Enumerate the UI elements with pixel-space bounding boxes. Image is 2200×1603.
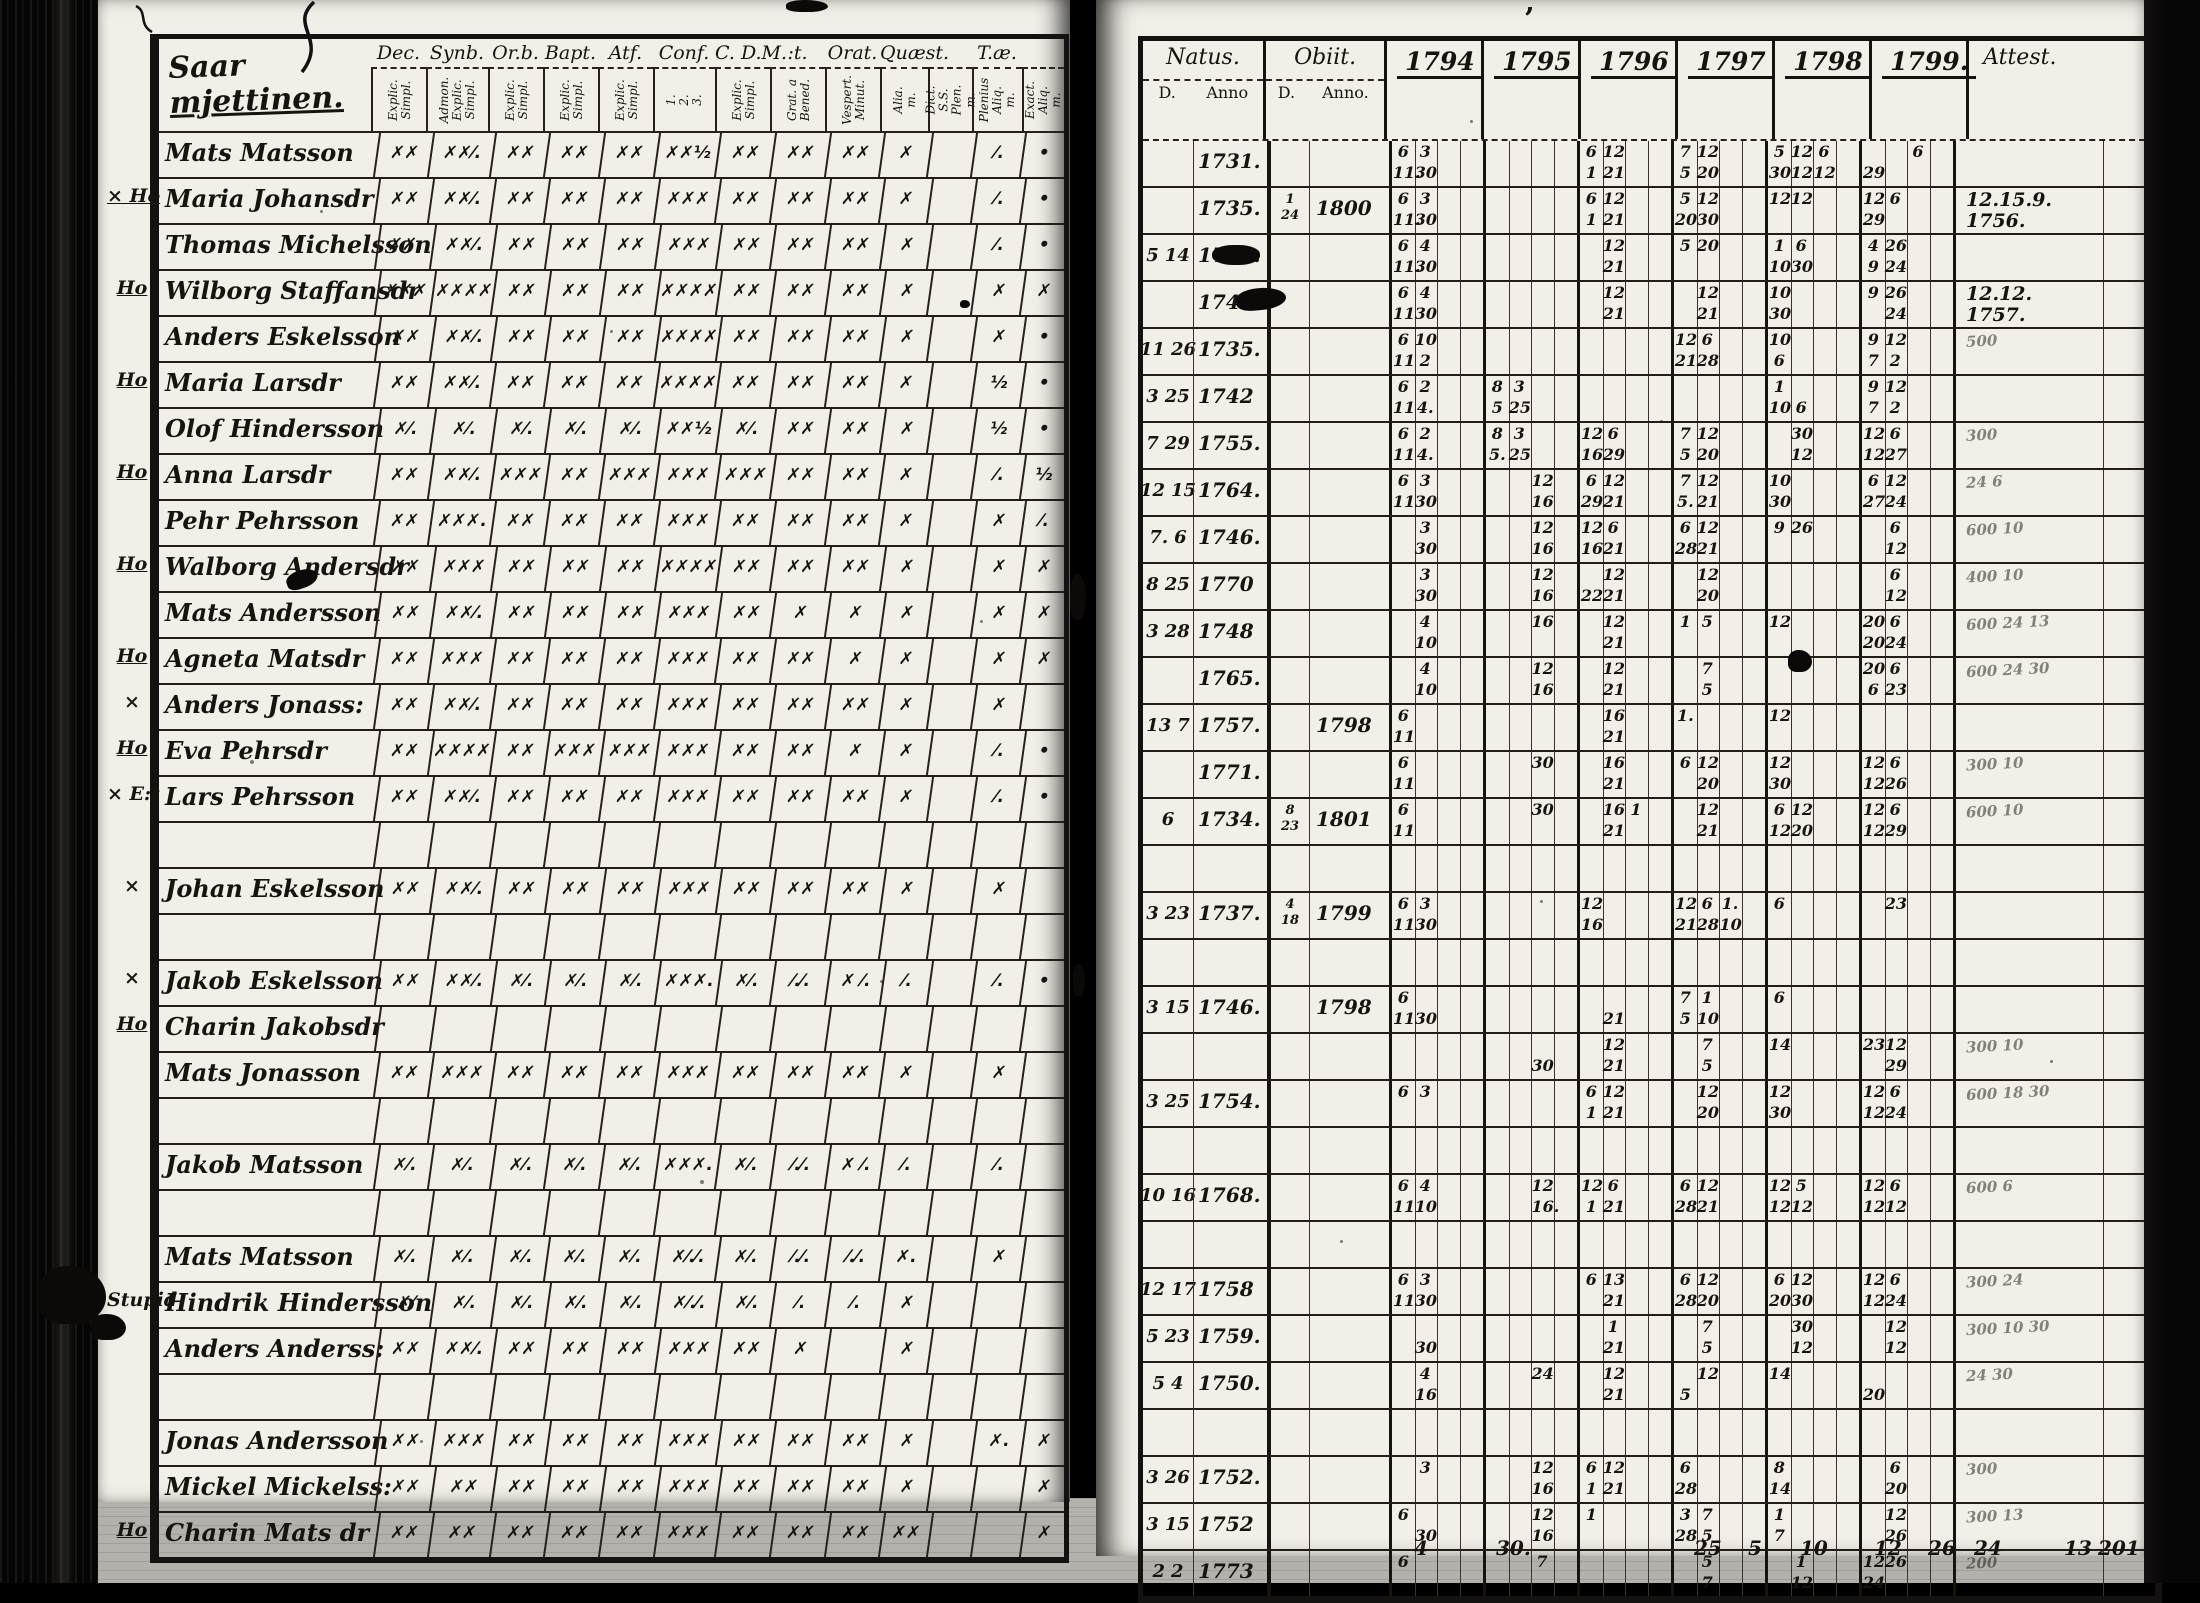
entry-number: 14: [1769, 1035, 1790, 1054]
entry-number: 10: [1415, 633, 1436, 652]
mark-cell: ✗✗: [543, 777, 604, 821]
entry-number: 11: [1393, 304, 1414, 323]
mark-cell: ✗✗: [374, 869, 435, 913]
empty-mark-cell: [1019, 1191, 1067, 1235]
entry-number: 30: [1791, 424, 1812, 443]
entry-number: 21: [1603, 492, 1624, 511]
natus-day-cell: [1143, 658, 1193, 703]
obiit-day-cell: [1267, 1081, 1309, 1126]
entry-number: 7: [1863, 398, 1884, 417]
entry-number: 12: [1697, 518, 1718, 537]
table-row: 11261735.610112126212810691272500: [1143, 329, 2155, 376]
table-row: 10161768.6411101216.12612161228211251212…: [1143, 1175, 2155, 1222]
mark-cell: ✗✗: [372, 1513, 433, 1557]
footer-number: 13: [2064, 1536, 2092, 1560]
natus-year-cell: 1734.: [1193, 799, 1267, 844]
mark-cell: ✗✗✗: [653, 455, 721, 499]
entry-number: 1: [1769, 236, 1790, 255]
empty-mark-cell: [970, 1375, 1026, 1419]
attest-cell: 24 30: [1953, 1363, 2145, 1408]
mark-cell: ⁄.⁄.: [769, 1237, 830, 1281]
mark-cell: [1019, 1007, 1067, 1051]
year-cell: 75: [1671, 1316, 1765, 1361]
attest-line: 12.15.9.: [1966, 190, 2145, 211]
natus-day: 25: [1165, 574, 1190, 609]
person-name: Mickel Mickelss:: [159, 1467, 377, 1511]
obiit-year-cell: [1309, 1175, 1389, 1220]
empty-mark-cell: [653, 1191, 721, 1235]
natus-day: 10: [1140, 1185, 1165, 1220]
entry-number: 6: [1581, 1270, 1602, 1289]
mark-cell: ✗✗: [599, 1329, 660, 1373]
natus-label: Natus.: [1143, 45, 1263, 70]
year-cell: [1765, 658, 1859, 703]
mark-cell: [926, 409, 976, 453]
entry-number: 28: [1697, 915, 1718, 934]
column-sub-label: Dict. S.S. Plen. m.: [928, 69, 972, 131]
mark-cell: ✗⁄.: [428, 1283, 496, 1327]
entry-number: 12: [1885, 1035, 1906, 1054]
entry-number: 12: [1603, 659, 1624, 678]
mark-cell: ✗✗: [769, 363, 830, 407]
year-cell: 612: [1859, 564, 1953, 609]
attest-cell: 600 18 30: [1953, 1081, 2145, 1126]
entry-number: 16: [1532, 539, 1553, 558]
column-sub-label: Explic. Simpl.: [371, 69, 426, 131]
empty-mark-cell: [1019, 1099, 1067, 1143]
mark-cell: ✗✗: [769, 547, 830, 591]
entry-number: 6: [1393, 988, 1414, 1007]
entry-number: 12: [1697, 800, 1718, 819]
entry-number: 9: [1863, 330, 1884, 349]
entry-number: 29: [1863, 163, 1884, 182]
column-sub-label-text: Plenius Aliq. m.: [978, 78, 1018, 122]
mark-cell: ✗✗⁄.: [427, 455, 495, 499]
natus-day-cell: 22: [1143, 1551, 1193, 1596]
natus-year-cell: 1750.: [1193, 1363, 1267, 1408]
entry-number: 12: [1885, 377, 1906, 396]
empty-name-cell: [159, 823, 376, 867]
entry-number: 6: [1675, 1458, 1696, 1477]
table-row: 3012217514231229300 10: [1143, 1034, 2155, 1081]
mark-cell: ✗✗: [823, 501, 884, 545]
obiit-day-cell: [1267, 1222, 1309, 1267]
year-cell: [1483, 846, 1577, 891]
year-cell: [1671, 846, 1765, 891]
entry-number: 10: [1415, 680, 1436, 699]
entry-number: 16: [1532, 1479, 1553, 1498]
natus-day: 5: [1146, 1326, 1159, 1361]
mark-cell: ✗✗: [372, 363, 433, 407]
mark-cell: ✗✗: [489, 1513, 550, 1557]
natus-day-cell: 1016: [1143, 1175, 1193, 1220]
year-cell: [1765, 846, 1859, 891]
year-cell: 426924: [1859, 235, 1953, 280]
year-cell: [1859, 1128, 1953, 1173]
attest-faint-scrawl: 600 24 30: [1966, 659, 2050, 681]
dust-speck: [320, 210, 323, 213]
entry-number: 12: [1791, 1270, 1812, 1289]
entry-number: 6: [1885, 1270, 1906, 1289]
empty-mark-cell: [598, 823, 659, 867]
mark-cell: [926, 179, 976, 223]
table-row: [1143, 1222, 2155, 1269]
mark-cell: ✗: [970, 501, 1026, 545]
year-cell: [1671, 940, 1765, 985]
year-cell: [1671, 376, 1765, 421]
entry-number: 6: [1393, 1082, 1414, 1101]
entry-number: 12: [1697, 471, 1718, 490]
mark-cell: ✗✗✗✗: [653, 363, 721, 407]
entry-number: 12: [1769, 821, 1790, 840]
empty-mark-cell: [489, 1099, 550, 1143]
year-cell: 1220: [1671, 1081, 1765, 1126]
mark-cell: ✗✗: [374, 547, 435, 591]
entry-number: 11: [1393, 398, 1414, 417]
table-row: [159, 1099, 1064, 1145]
entry-number: 27: [1863, 492, 1884, 511]
mark-cell: ✗✗: [544, 1467, 605, 1511]
entry-number: 21: [1603, 680, 1624, 699]
obiit-year-cell: [1309, 1504, 1389, 1549]
column-sub-label-text: Grat. a Bened.: [785, 79, 811, 121]
entry-number: 3: [1415, 894, 1436, 913]
column-group-label: [1022, 39, 1064, 69]
entry-number: 6: [1393, 1505, 1414, 1524]
entry-number: 30: [1415, 1338, 1436, 1357]
column-sub-label: Exact. Aliq. m.: [1022, 69, 1064, 131]
entry-number: 24: [1885, 633, 1906, 652]
natus-year-cell: 1754.: [1193, 1081, 1267, 1126]
natus-sub-d: D.: [1143, 81, 1191, 102]
entry-number: 12: [1863, 753, 1884, 772]
obiit-day: 18: [1271, 913, 1309, 929]
mark-cell: ✗: [970, 1053, 1026, 1097]
column-sub-label: 1. 2. 3.: [653, 69, 715, 131]
mark-cell: ✗✗: [490, 1421, 551, 1465]
dust-speck: [2050, 1060, 2053, 1063]
mark-cell: ✗: [878, 1329, 932, 1373]
mark-cell: ✗✗: [769, 1467, 830, 1511]
mark-cell: ✗✗: [599, 547, 660, 591]
table-row: Mickel Mickelss:✗✗✗✗✗✗✗✗✗✗✗✗✗✗✗✗✗✗✗✗✗: [159, 1467, 1064, 1513]
empty-mark-cell: [823, 1099, 884, 1143]
natus-day: 28: [1165, 621, 1190, 656]
mark-cell: [926, 1283, 976, 1327]
year-cell: 6122724: [1859, 470, 1953, 515]
entry-number: 12: [1532, 565, 1553, 584]
year-cell: 1030: [1765, 282, 1859, 327]
entry-number: 16: [1581, 445, 1602, 464]
person-name: Maria Larsdr: [159, 363, 376, 407]
attest-faint-scrawl: 24 30: [1966, 1365, 2014, 1385]
year-cell: 1261226: [1859, 752, 1953, 797]
mark-cell: [1019, 685, 1067, 729]
year-cell: [1859, 1410, 1953, 1455]
entry-number: 5: [1675, 163, 1696, 182]
year-cell: 3: [1389, 1457, 1483, 1502]
entry-number: 1: [1626, 800, 1647, 819]
year-cell: 1212: [1765, 188, 1859, 233]
entry-number: 11: [1393, 445, 1414, 464]
empty-mark-cell: [543, 1191, 604, 1235]
margin-note: ×: [107, 875, 157, 897]
entry-number: 20: [1697, 445, 1718, 464]
entry-number: 5: [1675, 1009, 1696, 1028]
entry-number: 12: [1697, 424, 1718, 443]
mark-cell: ✗✗✗: [598, 731, 659, 775]
entry-number: 16: [1415, 1385, 1436, 1404]
mark-cell: •: [1019, 961, 1067, 1005]
table-row: 31517526301216137285171226300 13: [1143, 1504, 2155, 1551]
natus-day-cell: 137: [1143, 705, 1193, 750]
table-row: StupidHindrik Hindersson✗⁄✗⁄.✗⁄.✗⁄.✗⁄.✗⁄…: [159, 1283, 1064, 1329]
natus-day-cell: [1143, 1410, 1193, 1455]
entry-number: 6: [1697, 894, 1718, 913]
entry-number: 20: [1863, 1385, 1884, 1404]
mark-cell: ✗: [878, 179, 932, 223]
entry-number: 30: [1697, 210, 1718, 229]
mark-cell: ✗✗: [598, 1053, 659, 1097]
entry-number: 2: [1415, 377, 1436, 396]
person-name: Jonas Andersson: [159, 1421, 377, 1465]
mark-cell: ✗✗✗.: [427, 501, 495, 545]
mark-cell: ✗✗: [490, 869, 551, 913]
mark-cell: ✗✗: [714, 363, 775, 407]
year-cell: [1577, 1410, 1671, 1455]
table-row: [1143, 1410, 2155, 1457]
natus-year-cell: 1735.: [1193, 188, 1267, 233]
attest-cell: 300 10 30: [1953, 1316, 2145, 1361]
year-cell: [1577, 846, 1671, 891]
dust-speck: [420, 1440, 423, 1443]
mark-cell: ✗✗: [598, 777, 659, 821]
attest-faint-scrawl: 24 6: [1966, 472, 2003, 492]
table-row: [1143, 1128, 2155, 1175]
mark-cell: ✗: [1019, 1421, 1067, 1465]
entry-number: 30: [1532, 1056, 1553, 1075]
entry-number: 11.: [1393, 163, 1414, 182]
mark-cell: ✗ ⁄.: [823, 1145, 884, 1189]
mark-cell: ✗: [878, 869, 932, 913]
mark-cell: ✗✗✗: [653, 179, 721, 223]
year-cell: 612: [1859, 517, 1953, 562]
table-row: Olof Hindersson✗⁄.✗⁄.✗⁄.✗⁄.✗⁄.✗✗½✗⁄.✗✗✗✗…: [159, 409, 1064, 455]
mark-cell: ✗✗½: [653, 133, 721, 177]
table-row: 3231737.418179963113012161261.212810623: [1143, 893, 2155, 940]
empty-mark-cell: [769, 823, 830, 867]
table-row: 325174262114.83525110691272: [1143, 376, 2155, 423]
attest-faint-scrawl: 300: [1966, 425, 1998, 445]
entry-number: 3: [1415, 1082, 1436, 1101]
mark-cell: ✗✗: [490, 1329, 551, 1373]
entry-number: 1: [1675, 612, 1696, 631]
entry-number: 30: [1415, 304, 1436, 323]
column-sub-label: Grat. a Bened.: [770, 69, 825, 131]
entry-number: 21: [1603, 1479, 1624, 1498]
mark-cell: [926, 133, 976, 177]
mark-cell: ✗✗: [769, 685, 830, 729]
mark-cell: ✗✗: [598, 133, 659, 177]
mark-cell: ✗✗: [769, 225, 830, 269]
year-cell: 23: [1859, 893, 1953, 938]
attest-cell: 300 24: [1953, 1269, 2145, 1314]
entry-number: 3: [1415, 142, 1436, 161]
year-cell: [1483, 188, 1577, 233]
year-cell: [1859, 940, 1953, 985]
year-cell: 24: [1483, 1363, 1577, 1408]
mark-cell: ✗✗: [824, 317, 885, 361]
mark-cell: [824, 1329, 885, 1373]
table-row: HoAnna Larsdr✗✗✗✗⁄.✗✗✗✗✗✗✗✗✗✗✗✗✗✗✗✗✗✗✗⁄.…: [159, 455, 1064, 501]
obiit-day-cell: [1267, 1363, 1309, 1408]
table-row: 7291755.62114.835.2512616297125203012126…: [1143, 423, 2155, 470]
entry-number: 6: [1791, 398, 1812, 417]
mark-cell: ✗✗✗: [653, 1053, 721, 1097]
table-row: [1143, 940, 2155, 987]
mark-cell: [926, 501, 976, 545]
entry-number: 5: [1487, 398, 1508, 417]
person-name: Mats Andersson: [159, 593, 377, 637]
year-cell: 330: [1389, 564, 1483, 609]
year-cell: 1621: [1577, 752, 1671, 797]
table-row: [159, 823, 1064, 869]
attest-faint-scrawl: 300 10 30: [1966, 1317, 2050, 1339]
footer-number: 12: [1874, 1536, 1902, 1560]
entry-number: 4: [1415, 612, 1436, 631]
entry-number: 30: [1415, 586, 1436, 605]
mark-cell: ✗: [970, 593, 1026, 637]
natus-year-cell: 1755.: [1193, 423, 1267, 468]
entry-number: 2: [1885, 398, 1906, 417]
mark-cell: ✗⁄.: [372, 1237, 433, 1281]
empty-name-cell: [159, 1375, 376, 1419]
year-cell: 6122030: [1765, 1269, 1859, 1314]
year-cell: 1261224: [1859, 1081, 1953, 1126]
entry-number: 22: [1581, 586, 1602, 605]
pen-comma: ’: [1524, 2, 1534, 37]
mark-cell: ✗✗: [374, 1329, 435, 1373]
mark-cell: ✗⁄.: [599, 1283, 660, 1327]
entry-number: 11: [1393, 492, 1414, 511]
attest-cell: [1953, 940, 2145, 985]
mark-cell: ⁄.: [878, 961, 932, 1005]
person-name: Maria Johansdr: [159, 179, 376, 223]
entry-number: 10: [1769, 283, 1790, 302]
obiit-day-cell: [1267, 658, 1309, 703]
empty-mark-cell: [543, 1099, 604, 1143]
dust-speck: [1340, 1240, 1343, 1243]
entry-number: 30: [1769, 1103, 1790, 1122]
mark-cell: ✗: [878, 363, 932, 407]
entry-number: 9: [1863, 257, 1884, 276]
year-cell: 1216.: [1483, 1175, 1577, 1220]
entry-number: 29: [1863, 210, 1884, 229]
empty-mark-cell: [598, 915, 659, 959]
mark-cell: ✗✗: [598, 639, 659, 683]
natus-day-cell: [1143, 940, 1193, 985]
mark-cell: ✗✗✗✗: [653, 271, 721, 315]
natus-day-cell: 325: [1143, 376, 1193, 421]
mark-cell: ✗✗✗: [653, 685, 721, 729]
natus-day-cell: 729: [1143, 423, 1193, 468]
entry-number: 7: [1675, 471, 1696, 490]
mark-cell: ✗⁄.: [714, 1237, 775, 1281]
natus-day-cell: [1143, 1222, 1193, 1267]
year-cell: [1859, 1222, 1953, 1267]
mark-cell: [970, 1007, 1026, 1051]
entry-number: 20: [1863, 612, 1884, 631]
entry-number: 30: [1415, 1291, 1436, 1310]
pen-squiggle: [128, 2, 168, 36]
margin-note: Ho: [107, 645, 157, 667]
entry-number: 12: [1697, 189, 1718, 208]
entry-number: 24: [1885, 304, 1906, 323]
entry-number: 12: [1581, 518, 1602, 537]
entry-number: 27: [1885, 445, 1906, 464]
natus-subheader: D. Anno: [1143, 79, 1263, 102]
obiit-year-cell: [1309, 1034, 1389, 1079]
entry-number: 12: [1581, 424, 1602, 443]
entry-number: 9: [1863, 377, 1884, 396]
mark-cell: ✗✗: [490, 225, 551, 269]
entry-number: 23: [1885, 894, 1906, 913]
entry-number: 12: [1769, 1176, 1790, 1195]
natus-year-cell: 1770: [1193, 564, 1267, 609]
obiit-year-cell: 1798: [1309, 705, 1389, 750]
natus-year-cell: 1764.: [1193, 470, 1267, 515]
column-sub-labels: Explic. Simpl.Admon. Explic. Simpl.Expli…: [371, 69, 1064, 131]
table-row: × E:tLars Pehrsson✗✗✗✗⁄.✗✗✗✗✗✗✗✗✗✗✗✗✗✗✗✗…: [159, 777, 1064, 823]
mark-cell: [926, 1007, 976, 1051]
year-cell: 106: [1765, 329, 1859, 374]
year-cell: [1483, 1081, 1577, 1126]
empty-mark-cell: [653, 1375, 721, 1419]
year-label: 1796: [1591, 47, 1677, 79]
column-sub-label-text: Dict. S.S. Plen. m.: [925, 85, 978, 116]
mark-cell: ✗✗: [372, 777, 433, 821]
mark-cell: ✗⁄.: [715, 961, 776, 1005]
entry-number: 7: [1697, 659, 1718, 678]
mark-cell: ✗: [1019, 271, 1067, 315]
mark-cell: ✗⁄.: [489, 1145, 550, 1189]
entry-number: 12: [1863, 1197, 1884, 1216]
footer-number: 26: [1928, 1536, 1956, 1560]
entry-number: 12: [1697, 1082, 1718, 1101]
column-sub-label: Admon. Explic. Simpl.: [426, 69, 488, 131]
year-cell: 6: [1765, 893, 1859, 938]
entry-number: 3: [1415, 518, 1436, 537]
entry-number: 7: [1675, 988, 1696, 1007]
attest-cell: [1953, 1410, 2145, 1455]
mark-cell: ✗✗✗: [374, 271, 435, 315]
mark-cell: ✗✗: [372, 639, 433, 683]
entry-number: 1: [1581, 1479, 1602, 1498]
mark-cell: ✗✗: [823, 363, 884, 407]
entry-number: 5: [1791, 1176, 1812, 1195]
year-cell: 1221: [1577, 658, 1671, 703]
entry-number: 3: [1415, 471, 1436, 490]
year-cell: 641110: [1389, 1175, 1483, 1220]
person-name: Hindrik Hindersson: [159, 1283, 377, 1327]
mark-cell: ✗✗: [490, 547, 551, 591]
year-headers: 179417951796179717981799.: [1384, 41, 1966, 139]
mark-cell: [926, 1237, 976, 1281]
year-cell: [1483, 1269, 1577, 1314]
year-cell: [1671, 1410, 1765, 1455]
entry-number: 12: [1863, 424, 1884, 443]
entry-number: 26: [1885, 236, 1906, 255]
